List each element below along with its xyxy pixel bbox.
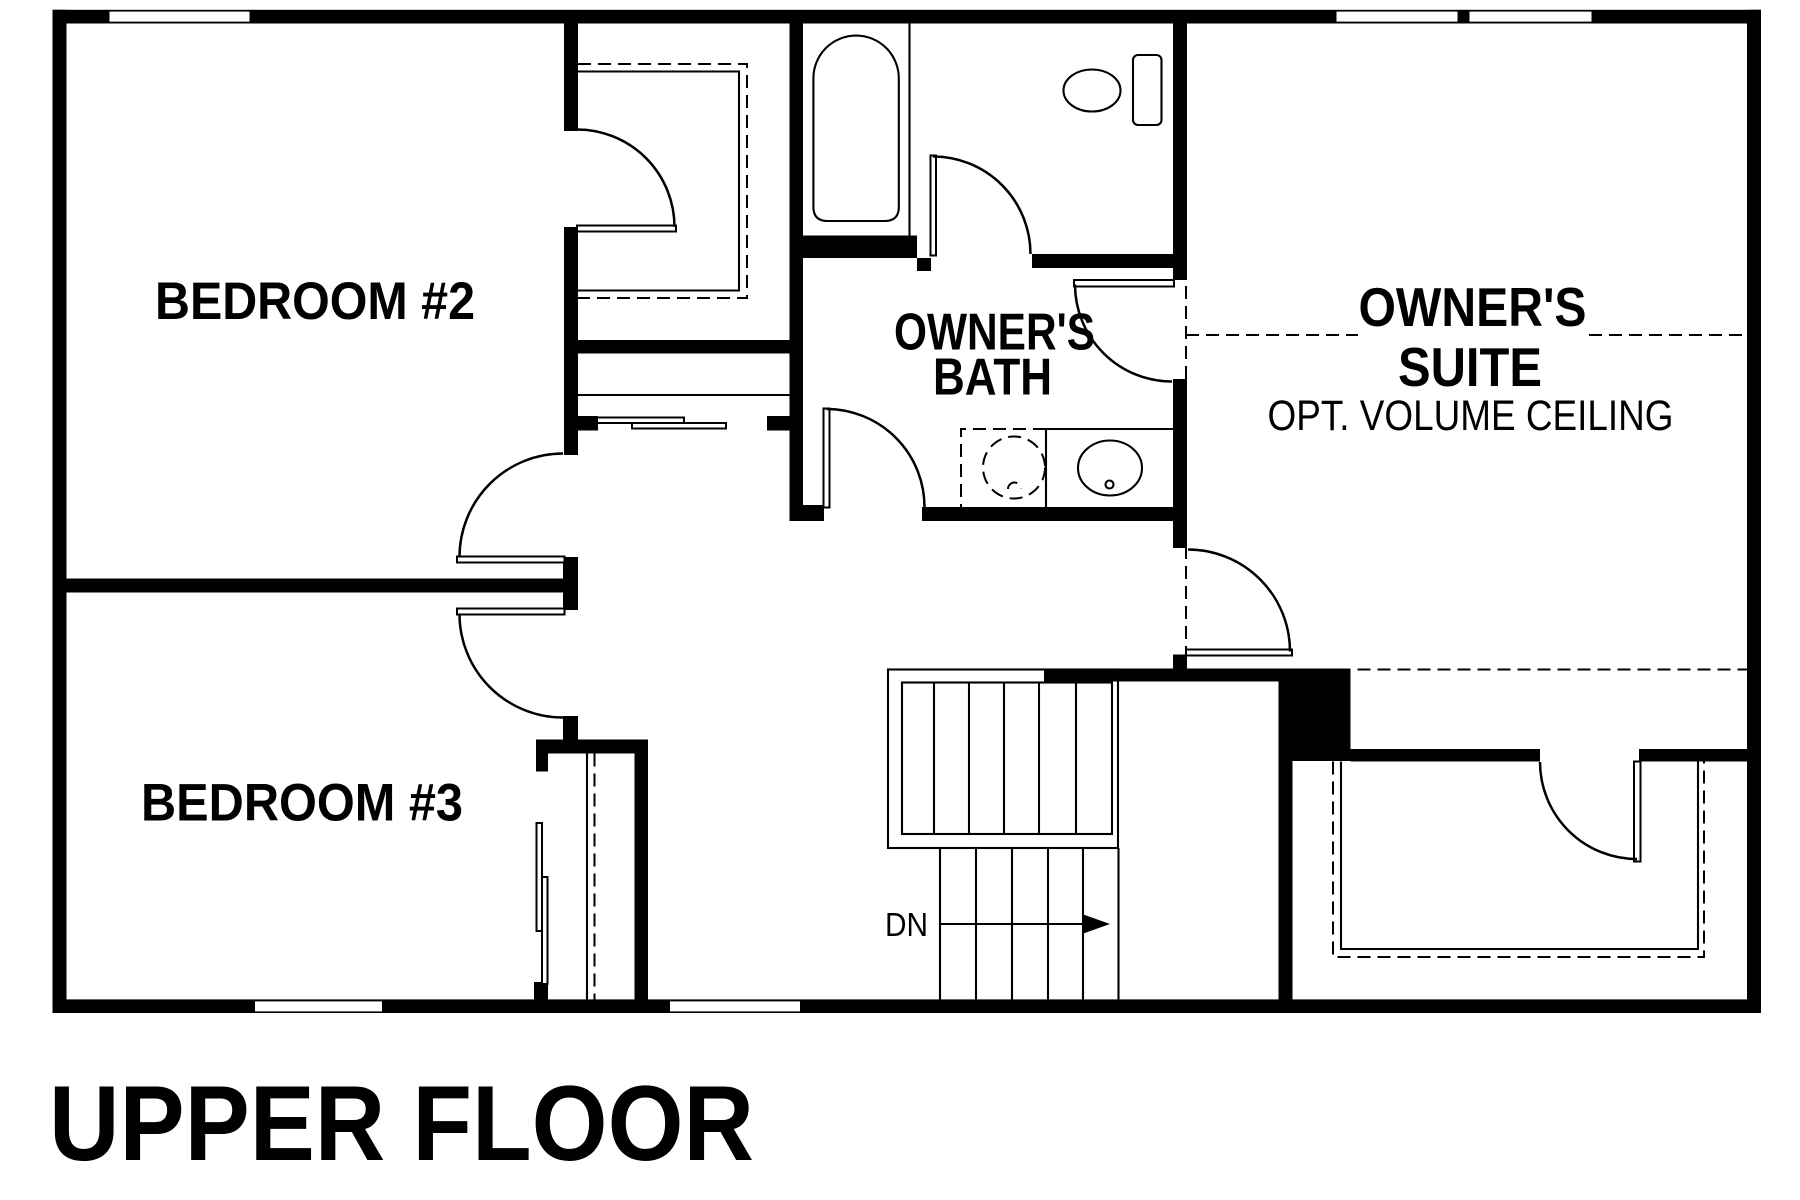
svg-text:BEDROOM #2: BEDROOM #2 <box>155 272 475 331</box>
svg-text:UPPER FLOOR: UPPER FLOOR <box>49 1064 754 1183</box>
svg-text:BEDROOM #3: BEDROOM #3 <box>141 774 463 833</box>
svg-text:SUITE: SUITE <box>1398 336 1542 398</box>
svg-text:OWNER'S: OWNER'S <box>1359 276 1587 338</box>
svg-text:DN: DN <box>885 906 928 943</box>
svg-text:OPT. VOLUME CEILING: OPT. VOLUME CEILING <box>1268 392 1674 440</box>
svg-text:BATH: BATH <box>933 349 1052 407</box>
